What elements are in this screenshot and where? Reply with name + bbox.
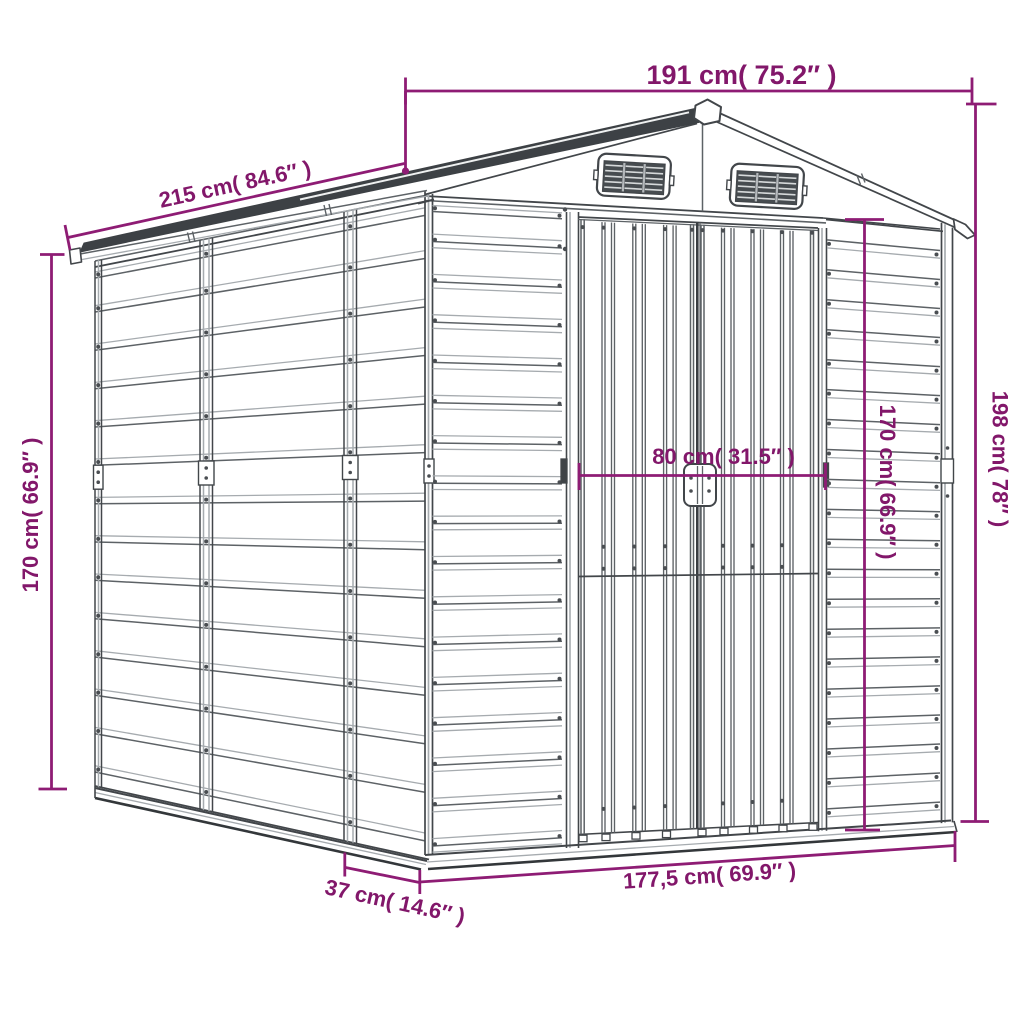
- svg-text:170 cm( 66.9″ ): 170 cm( 66.9″ ): [875, 405, 900, 560]
- svg-text:80 cm( 31.5″ ): 80 cm( 31.5″ ): [652, 444, 795, 469]
- svg-text:170 cm( 66.9″ ): 170 cm( 66.9″ ): [18, 438, 43, 593]
- svg-text:198 cm( 78″ ): 198 cm( 78″ ): [988, 391, 1013, 528]
- svg-text:191 cm( 75.2″ ): 191 cm( 75.2″ ): [646, 60, 836, 90]
